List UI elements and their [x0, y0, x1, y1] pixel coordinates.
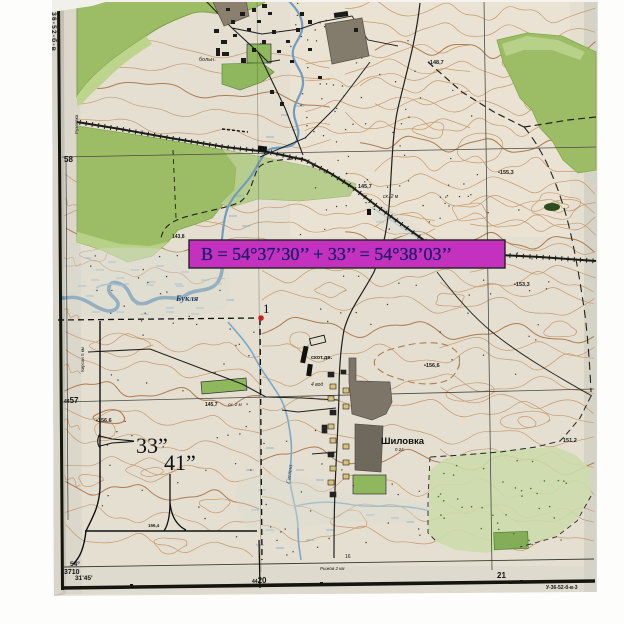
svg-text:58: 58: [64, 155, 73, 164]
svg-text:16: 16: [345, 554, 351, 560]
svg-text:31'45': 31'45': [75, 575, 93, 582]
svg-text:33”: 33”: [136, 433, 168, 458]
svg-text:•148,7: •148,7: [428, 60, 444, 66]
svg-text:ск. 2 м: ск. 2 м: [228, 402, 242, 407]
svg-text:151,2: 151,2: [563, 438, 577, 444]
svg-text:В = 54°37’30’’ + 33’’ = 54°38’: В = 54°37’30’’ + 33’’ = 54°38’03’’: [201, 244, 452, 264]
svg-text:•156,6: •156,6: [96, 418, 112, 424]
svg-text:больн.: больн.: [199, 57, 216, 63]
svg-text:Букля: Букля: [175, 293, 199, 303]
svg-text:0.24: 0.24: [395, 447, 404, 452]
svg-text:4 вод: 4 вод: [311, 382, 323, 388]
svg-text:У-36-52-б-в-3: У-36-52-б-в-3: [546, 584, 578, 591]
svg-text:145,7: 145,7: [358, 184, 372, 190]
svg-text:1: 1: [263, 301, 270, 316]
svg-text:21: 21: [497, 571, 506, 580]
svg-text:Кирсан 5 км: Кирсан 5 км: [80, 347, 85, 372]
svg-text:•153,3: •153,3: [514, 282, 530, 288]
svg-text:156,4: 156,4: [148, 523, 160, 528]
svg-text:Рыжов 2 км: Рыжов 2 км: [320, 566, 344, 571]
svg-text:скот.дв.: скот.дв.: [311, 355, 333, 361]
svg-text:Шиловка: Шиловка: [381, 436, 425, 447]
svg-text:ск. 2 м: ск. 2 м: [383, 194, 399, 200]
svg-text:•156,6: •156,6: [424, 363, 440, 369]
svg-text:•155,3: •155,3: [498, 170, 514, 176]
svg-text:Рузаевка: Рузаевка: [74, 114, 79, 134]
svg-text:145,7: 145,7: [205, 402, 218, 408]
svg-text:41”: 41”: [164, 450, 196, 475]
svg-text:143,8: 143,8: [172, 234, 185, 240]
